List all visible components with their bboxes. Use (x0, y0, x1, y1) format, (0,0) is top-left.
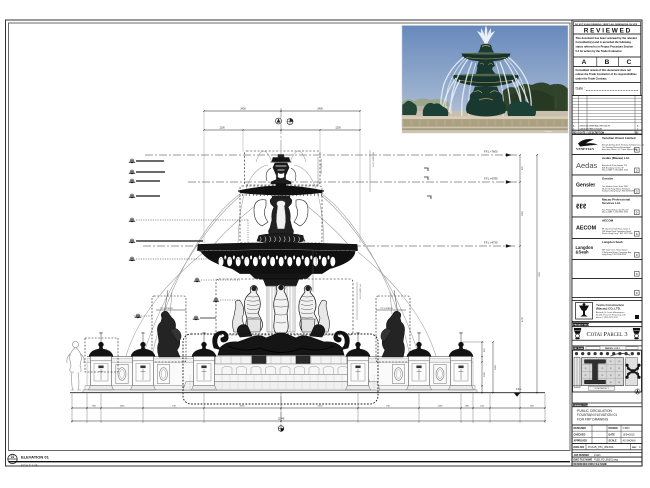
svg-text:TYP. WATER LEVEL: TYP. WATER LEVEL (315, 252, 318, 268)
svg-text:1200: 1200 (335, 127, 341, 130)
svg-text:D: D (636, 148, 638, 152)
svg-text:AS SHOWN: AS SHOWN (623, 440, 636, 443)
svg-text:Kowloon, Hong Kong T 852.2599: Kowloon, Hong Kong T 852.2599.8788 (602, 191, 635, 193)
svg-text:TYP. B STATUE: TYP. B STATUE (160, 307, 174, 310)
svg-text:(Macau) CO.,LTD.: (Macau) CO.,LTD. (596, 307, 621, 311)
svg-text:SCALE 1:25: SCALE 1:25 (21, 464, 38, 468)
svg-text:Shatin, Hong Kong T 852 2317: Shatin, Hong Kong T 852 2317 7600 (602, 232, 633, 235)
svg-text:7600: 7600 (539, 271, 541, 277)
svg-text:2516: 2516 (318, 406, 324, 408)
svg-text:TYP. WATER LEVEL: TYP. WATER LEVEL (372, 152, 375, 168)
svg-text:2050: 2050 (522, 210, 524, 216)
svg-text:P13-B_PD_8N301: P13-B_PD_8N301 (588, 445, 614, 449)
svg-text:JOB NUMBER: JOB NUMBER (574, 455, 590, 457)
svg-text:FOR FRP DRAWING: FOR FRP DRAWING (577, 418, 609, 422)
svg-text:DRAWN: DRAWN (609, 427, 618, 430)
svg-text:APPROVED: APPROVED (574, 440, 588, 443)
svg-text:Macau SAR T +853 2832 3355: Macau SAR T +853 2832 3355 (602, 211, 628, 214)
svg-text:KEY PLAN: KEY PLAN (574, 347, 584, 350)
svg-text:PUBLIC CIRCULATION: PUBLIC CIRCULATION (577, 409, 613, 413)
svg-text:DWG FILE NAME: DWG FILE NAME (574, 459, 593, 462)
svg-text:5.4 for action by the Trade Co: 5.4 for action by the Trade Contractor. (576, 49, 623, 53)
svg-text:1265: 1265 (120, 406, 126, 408)
svg-text:This document has been reviewe: This document has been reviewed by the r… (576, 36, 637, 40)
svg-text:Langdon Seah: Langdon Seah (602, 240, 623, 244)
svg-text:DO NOT SCALE DRAWING. VERIFY A: DO NOT SCALE DRAWING. VERIFY ALL DIMENSI… (575, 23, 638, 26)
svg-text:&Seah: &Seah (576, 249, 589, 254)
svg-text:COTAI PARCEL 3: COTAI PARCEL 3 (594, 387, 608, 390)
svg-text:status referred to in Proje: status referred to in Project Procedure … (576, 45, 634, 49)
svg-text:1200: 1200 (219, 127, 225, 130)
svg-text:4730: 4730 (522, 316, 524, 322)
svg-text:© photo: © photo (544, 130, 552, 133)
svg-text:Aedas (Macau) Ltd.: Aedas (Macau) Ltd. (602, 156, 630, 160)
svg-text:ℓℓℓ: ℓℓℓ (576, 204, 587, 211)
svg-text:1265: 1265 (438, 406, 444, 408)
svg-text:21123: 21123 (594, 454, 601, 457)
svg-text:D: D (636, 272, 638, 276)
svg-text:Consultant review of this docu: Consultant review of this document does … (576, 68, 632, 72)
svg-text:FOUNTAIN ELEVATION 01: FOUNTAIN ELEVATION 01 (577, 413, 617, 417)
svg-text:Consultants(s) and is accorded: Consultants(s) and is accorded the follo… (576, 40, 632, 44)
svg-text:1350: 1350 (484, 371, 486, 377)
svg-text:TYP. WATER LEVEL: TYP. WATER LEVEL (320, 159, 323, 175)
svg-text:P13B_PD_8N301.dwg: P13B_PD_8N301.dwg (594, 459, 619, 462)
svg-text:10/04/2016: 10/04/2016 (623, 433, 636, 436)
svg-text:CHECKED: CHECKED (574, 433, 586, 436)
svg-text:Macau SAR T +853 2833 1023: Macau SAR T +853 2833 1023 (602, 169, 628, 172)
svg-text:AECOM: AECOM (602, 219, 614, 223)
svg-text:Hong Kong T 852 2830 3500: Hong Kong T 852 2830 3500 (602, 254, 626, 256)
svg-text:D: D (636, 190, 638, 194)
svg-text:D: D (636, 211, 638, 215)
svg-text:REV: REV (573, 132, 578, 134)
svg-text:B: B (605, 59, 610, 66)
svg-text:VENETIAN: VENETIAN (576, 147, 594, 151)
svg-text:A: A (582, 59, 587, 66)
svg-text:1950: 1950 (495, 364, 497, 370)
svg-text:CJWO: CJWO (623, 427, 630, 430)
svg-text:D: D (636, 232, 638, 236)
svg-text:Executive Offices - L2, Taipa,: Executive Offices - L2, Taipa, Macau SAR (602, 148, 638, 151)
svg-text:PARCEL 1 OF 3: PARCEL 1 OF 3 (605, 347, 621, 350)
svg-text:COTAI PARCEL 3: COTAI PARCEL 3 (586, 331, 627, 338)
svg-text:2400: 2400 (317, 108, 323, 111)
svg-text:under the Trade Contract.: under the Trade Contract. (576, 76, 608, 80)
svg-text:Aedas: Aedas (576, 161, 598, 170)
svg-text:2516: 2516 (240, 406, 246, 408)
svg-text:Venetian Orient Limited: Venetian Orient Limited (602, 136, 636, 140)
svg-text:R E V I E W E D: R E V I E W E D (584, 27, 631, 34)
svg-text:DATE: DATE (609, 433, 616, 436)
svg-text:ELEVATION 01: ELEVATION 01 (21, 454, 50, 459)
svg-text:D: D (636, 169, 638, 173)
svg-text:DWG NO: DWG NO (574, 446, 585, 449)
svg-text:BY: BY (636, 132, 640, 134)
svg-text:Services Ltd.: Services Ltd. (602, 201, 621, 205)
svg-text:relieve the Trade Contractor o: relieve the Trade Contractor of its resp… (576, 72, 638, 76)
svg-text:DATE: DATE (580, 131, 587, 134)
svg-text:DRAWING TITLE: DRAWING TITLE (574, 404, 590, 407)
svg-text:DESCRIPTION: DESCRIPTION (589, 132, 605, 134)
svg-text:C: C (627, 59, 632, 66)
svg-text:F.F.L +4730: F.F.L +4730 (484, 241, 498, 245)
svg-text:REV: REV (632, 447, 637, 449)
svg-text:D: D (636, 291, 638, 295)
svg-text:AECOM: AECOM (576, 225, 597, 231)
svg-text:Macau T (853) 2875 2037: Macau T (853) 2875 2037 (596, 317, 618, 319)
svg-text:F.F.L +6780: F.F.L +6780 (484, 177, 498, 181)
svg-text:REFERENCE DWG FILE NAME: REFERENCE DWG FILE NAME (574, 463, 608, 466)
svg-text:DESIGNED: DESIGNED (574, 427, 587, 430)
svg-text:09/05/16: 09/05/16 (580, 125, 589, 127)
svg-text:F.F.L.: F.F.L. (516, 387, 522, 391)
svg-text:01: 01 (11, 455, 15, 459)
svg-text:GENERAL REVISION: GENERAL REVISION (589, 124, 611, 127)
svg-text:Date :: Date : (576, 87, 586, 91)
svg-text:TYP. WATER LEVEL: TYP. WATER LEVEL (359, 284, 362, 300)
svg-text:2400: 2400 (240, 108, 246, 111)
svg-text:Gensler: Gensler (576, 183, 595, 189)
svg-text:SCALE: SCALE (609, 440, 618, 443)
svg-text:Gensler: Gensler (602, 177, 614, 181)
svg-text:F.F.L +7600: F.F.L +7600 (484, 150, 498, 154)
svg-text:D: D (636, 253, 638, 257)
svg-text:12748: 12748 (278, 418, 285, 421)
